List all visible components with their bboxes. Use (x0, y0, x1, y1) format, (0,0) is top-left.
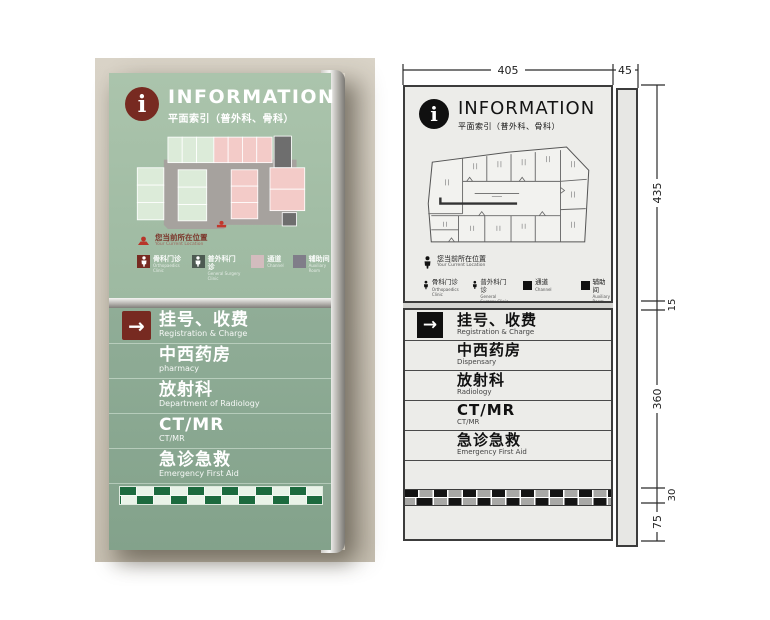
checker-stripe (119, 486, 323, 505)
arrow-icon: → (122, 311, 151, 340)
directory-row: 中西药房pharmacy (109, 343, 331, 379)
you-are-here-legend: 您当前所在位置 Your Current Location (137, 234, 208, 248)
aluminum-divider-rail (109, 298, 331, 308)
dimension-annotations: 405 45 435 15 360 30 75 (395, 52, 695, 592)
legend-item: 辅助间Auxiliary Room (293, 255, 331, 281)
passage-color-swatch (251, 255, 264, 268)
dim-gap-label: 15 (667, 299, 678, 312)
dim-upper-label: 435 (651, 183, 664, 204)
sign-title: INFORMATION (168, 87, 335, 107)
legend-item: 普外科门诊General Surgery Clinic (192, 255, 243, 281)
directory-row: CT/MRCT/MR (109, 413, 331, 449)
dim-stripe-label: 30 (667, 489, 678, 502)
signage-design-sheet: i INFORMATION 平面索引（普外科、骨科） (0, 0, 770, 620)
dim-middle-label: 360 (651, 389, 664, 410)
directory-row: 急诊急救Emergency First Aid (109, 448, 331, 484)
directory-board: → 挂号、收费Registration & Charge 中西药房pharmac… (109, 308, 331, 550)
sign-board: i INFORMATION 平面索引（普外科、骨科） (109, 73, 345, 550)
auxiliary-color-swatch (293, 255, 306, 268)
person-icon (192, 255, 205, 268)
info-icon: i (125, 87, 159, 121)
directory-row: 放射科Department of Radiology (109, 378, 331, 414)
sign-header: i INFORMATION 平面索引（普外科、骨科） (125, 87, 321, 125)
sign-subtitle: 平面索引（普外科、骨科） (168, 110, 335, 125)
location-marker-icon (137, 236, 150, 246)
map-board: i INFORMATION 平面索引（普外科、骨科） (109, 73, 331, 298)
directory-row: → 挂号、收费Registration & Charge (109, 308, 331, 344)
map-legend: 骨科门诊Orthopaedics Clinic 普外科门诊General Sur… (137, 255, 331, 281)
dim-width-label: 405 (498, 64, 519, 77)
legend-item: 骨科门诊Orthopaedics Clinic (137, 255, 183, 281)
dim-side-label: 45 (618, 64, 632, 77)
dim-lower-label: 75 (651, 515, 664, 529)
floor-plan-map (133, 131, 309, 229)
sign-photo: i INFORMATION 平面索引（普外科、骨科） (95, 58, 375, 562)
person-icon (137, 255, 150, 268)
legend-item: 通道Channel (251, 255, 283, 281)
